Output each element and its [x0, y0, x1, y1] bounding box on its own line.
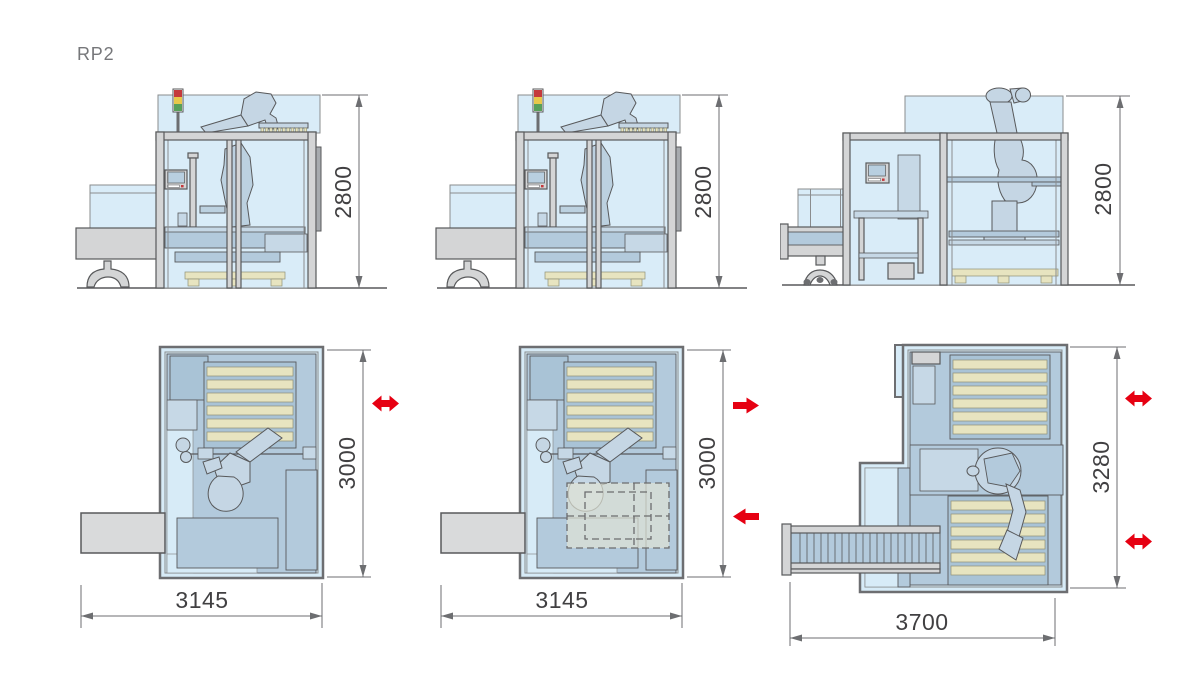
top-view-machine-3: 3280 3700 — [770, 330, 1170, 665]
side-view-machine-1: 2800 — [75, 85, 395, 297]
height-dimension-label: 2800 — [1090, 162, 1116, 215]
height-dimension: 2800 — [322, 95, 368, 288]
side-view-machine-2: 2800 — [435, 85, 755, 297]
pallet-stack-zone-top — [950, 355, 1050, 439]
width-dimension: 3145 — [441, 583, 682, 628]
hmi-panel — [866, 163, 889, 183]
pallet-stack-zone-bottom — [948, 496, 1048, 585]
width-dimension-label: 3700 — [895, 609, 948, 635]
diagram-canvas: RP2 — [0, 0, 1200, 690]
right-arrow-icon — [733, 398, 759, 414]
depth-dimension-label: 3000 — [334, 436, 360, 489]
double-horizontal-arrow-icon — [1125, 534, 1152, 550]
roller-conveyor — [782, 524, 940, 575]
double-horizontal-arrow-icon — [1125, 391, 1152, 407]
top-view-machine-1: 3000 3145 — [60, 340, 405, 640]
double-horizontal-arrow-icon — [372, 396, 399, 412]
depth-dimension-label: 3280 — [1088, 440, 1114, 493]
depth-dimension-label: 3000 — [694, 436, 720, 489]
depth-dimension: 3280 — [1070, 347, 1126, 588]
width-dimension: 3145 — [81, 583, 322, 628]
height-dimension: 2800 — [682, 95, 728, 288]
top-view-machine-2: 3000 3145 — [420, 340, 765, 640]
depth-dimension: 3000 — [327, 350, 371, 577]
depth-dimension: 3000 — [687, 350, 731, 577]
height-dimension-label: 2800 — [330, 165, 356, 218]
width-dimension-label: 3145 — [175, 587, 228, 613]
left-arrow-icon — [733, 509, 759, 525]
pallet-position-outlines — [567, 483, 669, 548]
height-dimension: 2800 — [1066, 96, 1130, 285]
height-dimension-label: 2800 — [690, 165, 716, 218]
width-dimension-label: 3145 — [535, 587, 588, 613]
side-view-machine-3: 2800 — [780, 85, 1140, 297]
model-label: RP2 — [77, 44, 114, 65]
